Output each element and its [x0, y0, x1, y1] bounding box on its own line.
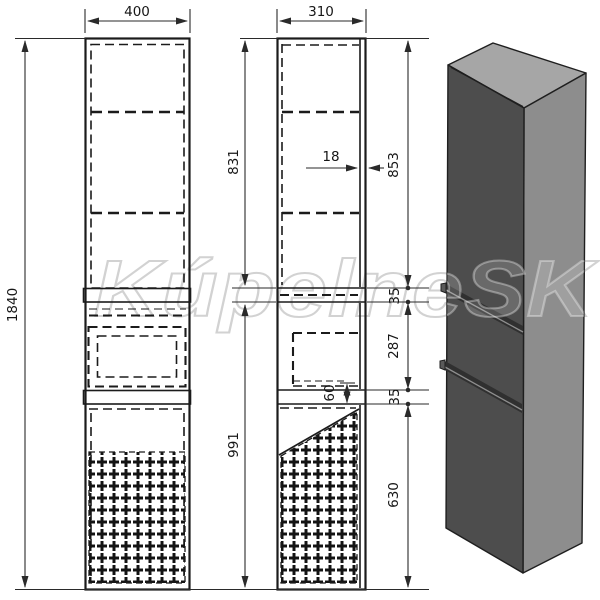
dim-lower-door: 630 [386, 482, 402, 508]
dim-drawer-offset: 60 [322, 384, 338, 401]
front-hatched-panel [89, 452, 185, 583]
dim-upper-door: 853 [386, 152, 402, 178]
technical-drawing: KúpelneSK [0, 0, 600, 600]
dim-upper-section: 831 [226, 149, 242, 175]
dim-lower-section: 991 [226, 432, 242, 458]
dim-upper-gap: 35 [387, 287, 403, 304]
dim-drawer-section: 287 [386, 333, 402, 359]
dim-total-height: 1840 [5, 288, 21, 322]
dim-door-thickness: 18 [322, 149, 339, 165]
dim-lower-gap: 35 [387, 388, 403, 405]
dim-front-width: 400 [124, 4, 150, 20]
side-hatched-panel [281, 412, 357, 583]
front-band-lower [84, 391, 191, 405]
dim-side-depth: 310 [308, 4, 334, 20]
drawing-canvas: KúpelneSK [0, 0, 600, 600]
